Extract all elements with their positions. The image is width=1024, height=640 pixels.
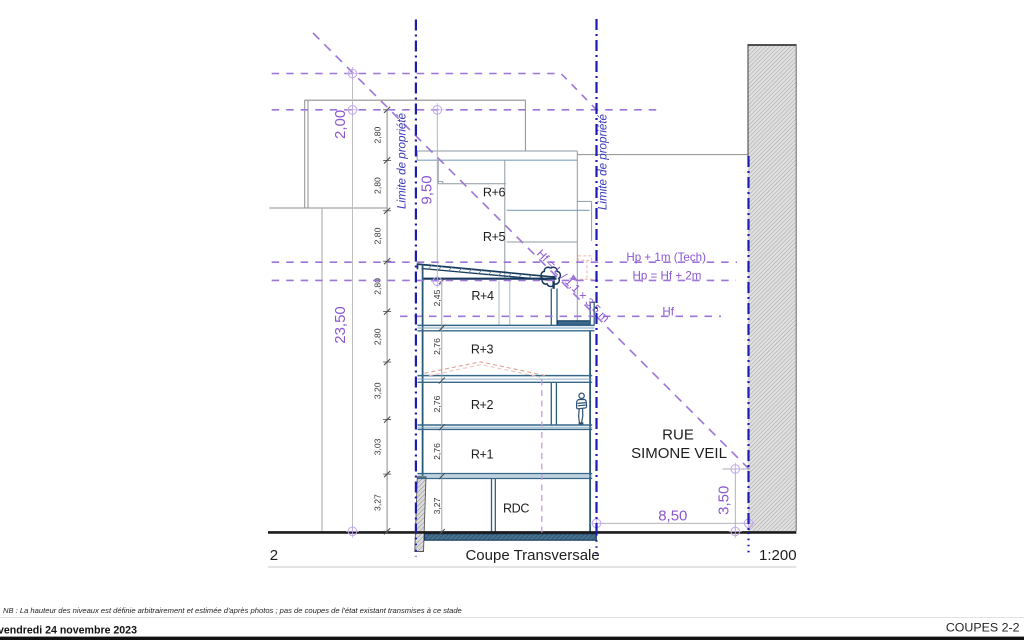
svg-text:RUE: RUE <box>662 426 694 443</box>
svg-text:Hp + 1m (Tech): Hp + 1m (Tech) <box>626 251 706 264</box>
svg-text:2,80: 2,80 <box>373 328 383 345</box>
svg-text:Coupe Transversale: Coupe Transversale <box>465 547 599 564</box>
svg-text:COUPES 2-2: COUPES 2-2 <box>946 621 1020 635</box>
svg-text:R+2: R+2 <box>471 398 494 412</box>
svg-text:R+3: R+3 <box>471 342 494 356</box>
svg-text:2,80: 2,80 <box>373 127 383 144</box>
svg-text:SIMONE VEIL: SIMONE VEIL <box>631 445 727 462</box>
svg-text:3,27: 3,27 <box>373 494 383 511</box>
svg-text:RDC: RDC <box>503 501 529 515</box>
svg-text:3,20: 3,20 <box>373 382 383 399</box>
svg-text:2,76: 2,76 <box>432 338 442 355</box>
svg-text:2,45: 2,45 <box>432 289 442 306</box>
svg-text:3,27: 3,27 <box>432 497 442 514</box>
svg-text:23,50: 23,50 <box>332 306 349 344</box>
svg-text:3,50: 3,50 <box>716 486 733 515</box>
svg-text:1:200: 1:200 <box>759 547 797 564</box>
svg-text:R+4: R+4 <box>471 289 494 303</box>
svg-text:vendredi 24 novembre 2023: vendredi 24 novembre 2023 <box>0 625 137 637</box>
svg-text:2: 2 <box>270 547 278 564</box>
svg-text:2,80: 2,80 <box>373 177 383 194</box>
svg-text:2,76: 2,76 <box>432 395 442 412</box>
svg-text:R+6: R+6 <box>483 185 506 199</box>
svg-text:2,76: 2,76 <box>432 443 442 460</box>
svg-text:9,50: 9,50 <box>419 175 436 204</box>
svg-text:Limite de propriété: Limite de propriété <box>597 113 610 210</box>
svg-text:Hf: Hf <box>662 305 674 318</box>
svg-text:Limite de propriété: Limite de propriété <box>396 112 409 209</box>
svg-text:3,03: 3,03 <box>373 438 383 455</box>
svg-text:2,80: 2,80 <box>373 227 383 244</box>
svg-text:Hp = Hf + 2m: Hp = Hf + 2m <box>633 270 702 283</box>
svg-text:2,00: 2,00 <box>332 110 349 139</box>
svg-text:R+1: R+1 <box>471 447 494 461</box>
svg-text:NB : La hauteur des niveaux es: NB : La hauteur des niveaux est définie … <box>3 606 462 615</box>
svg-text:R+5: R+5 <box>483 230 506 244</box>
svg-text:8,50: 8,50 <box>658 508 687 525</box>
